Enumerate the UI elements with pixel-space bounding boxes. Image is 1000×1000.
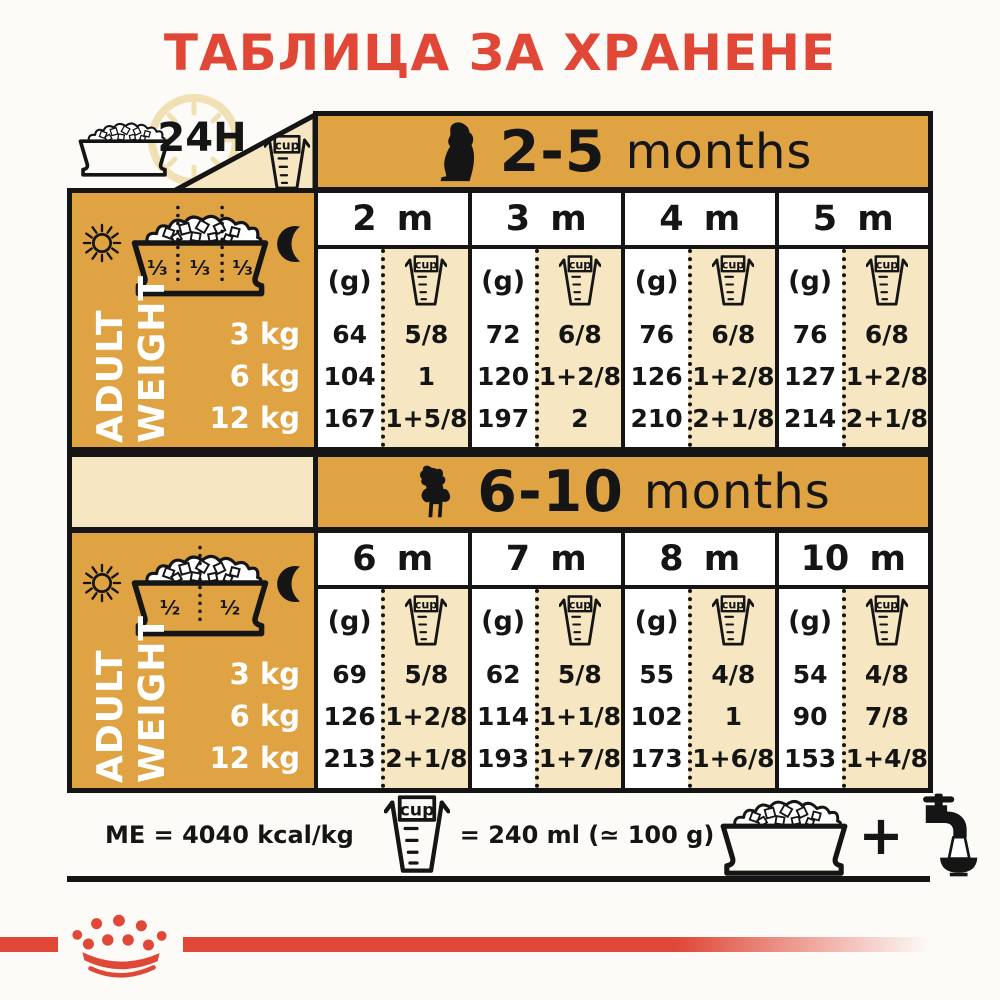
grams-value: 64 bbox=[318, 313, 381, 355]
weight-label: 12 kg bbox=[210, 397, 301, 439]
month-column-7m: 7 m (g) 62 114 193 5/8 1+1/8 1+7/8 bbox=[468, 533, 622, 788]
grams-value: 127 bbox=[779, 355, 842, 397]
cups-value: 6/8 bbox=[846, 313, 928, 355]
cups-value: 2+1/8 bbox=[385, 737, 467, 779]
measuring-cup-icon bbox=[405, 594, 447, 648]
cups-subcolumn: 4/8 1 1+6/8 bbox=[688, 589, 774, 788]
measuring-cup-icon bbox=[559, 594, 601, 648]
cup-equivalence: = 240 ml (≃ 100 g) bbox=[460, 821, 715, 849]
cups-value: 6/8 bbox=[692, 313, 774, 355]
weight-label: 6 kg bbox=[210, 695, 301, 737]
spacer-block bbox=[67, 452, 313, 532]
cups-value: 5/8 bbox=[539, 653, 621, 695]
grams-value: 62 bbox=[472, 653, 535, 695]
grams-value: 210 bbox=[625, 397, 688, 439]
red-accent-bar-right bbox=[183, 937, 930, 952]
month-header: 4 m bbox=[625, 193, 775, 249]
grams-value: 120 bbox=[472, 355, 535, 397]
table1-left-panel: ⅓ ⅓ ⅓ ADULT WEIGHT 3 kg 6 kg 12 kg bbox=[72, 193, 314, 447]
grams-value: 197 bbox=[472, 397, 535, 439]
water-tap-icon bbox=[908, 792, 988, 878]
cups-value: 4/8 bbox=[692, 653, 774, 695]
grams-value: 104 bbox=[318, 355, 381, 397]
measuring-cup-icon bbox=[405, 254, 447, 308]
month-header: 10 m bbox=[779, 533, 929, 589]
cups-subcolumn: 6/8 1+2/8 2+1/8 bbox=[688, 249, 774, 447]
grams-value: 76 bbox=[625, 313, 688, 355]
cups-value: 2+1/8 bbox=[846, 397, 928, 439]
grams-subcolumn: (g) 54 90 153 bbox=[779, 589, 842, 788]
weight-label: 3 kg bbox=[210, 313, 301, 355]
sun-icon bbox=[80, 221, 124, 265]
cups-value: 1 bbox=[385, 355, 467, 397]
cups-subcolumn: 5/8 1 1+5/8 bbox=[381, 249, 467, 447]
cups-value: 5/8 bbox=[385, 313, 467, 355]
month-header: 6 m bbox=[318, 533, 468, 589]
divider-line bbox=[67, 876, 930, 882]
cups-value: 1+5/8 bbox=[385, 397, 467, 439]
weight-label: 12 kg bbox=[210, 737, 301, 779]
svg-text:½: ½ bbox=[220, 597, 240, 620]
grams-subcolumn: (g) 55 102 173 bbox=[625, 589, 688, 788]
grams-unit-label: (g) bbox=[472, 589, 535, 653]
cups-subcolumn: 5/8 1+2/8 2+1/8 bbox=[381, 589, 467, 788]
feeding-table-2-5-months: ⅓ ⅓ ⅓ ADULT WEIGHT 3 kg 6 kg 12 kg 2 m (… bbox=[67, 188, 933, 452]
cups-value: 1+6/8 bbox=[692, 737, 774, 779]
grams-value: 126 bbox=[625, 355, 688, 397]
page-title: ТАБЛИЦА ЗА ХРАНЕНЕ bbox=[0, 24, 1000, 82]
cups-value: 2 bbox=[539, 397, 621, 439]
grams-value: 153 bbox=[779, 737, 842, 779]
daily-ration-icons: ⅓ ⅓ ⅓ bbox=[72, 193, 314, 300]
cups-value: 4/8 bbox=[846, 653, 928, 695]
age-unit: months bbox=[626, 124, 813, 180]
cups-value: 5/8 bbox=[385, 653, 467, 695]
grams-subcolumn: (g) 72 120 197 bbox=[472, 249, 535, 447]
measuring-cup-icon bbox=[559, 254, 601, 308]
food-bowl-icon bbox=[714, 791, 854, 879]
poodle-silhouette-icon bbox=[415, 463, 457, 521]
month-header: 7 m bbox=[472, 533, 622, 589]
grams-unit-label: (g) bbox=[625, 589, 688, 653]
month-column-6m: 6 m (g) 69 126 213 5/8 1+2/8 2+1/8 bbox=[314, 533, 468, 788]
table2-left-panel: ½ ½ ADULT WEIGHT 3 kg 6 kg 12 kg bbox=[72, 533, 314, 788]
measuring-cup-icon bbox=[866, 254, 908, 308]
month-column-4m: 4 m (g) 76 126 210 6/8 1+2/8 2+1/8 bbox=[621, 193, 775, 447]
grams-value: 69 bbox=[318, 653, 381, 695]
grams-value: 102 bbox=[625, 695, 688, 737]
weight-rows: 3 kg 6 kg 12 kg bbox=[210, 313, 301, 439]
grams-unit-label: (g) bbox=[318, 589, 381, 653]
grams-subcolumn: (g) 69 126 213 bbox=[318, 589, 381, 788]
grams-value: 55 bbox=[625, 653, 688, 695]
puppy-silhouette-icon bbox=[434, 121, 480, 183]
grams-unit-label: (g) bbox=[625, 249, 688, 313]
svg-text:⅓: ⅓ bbox=[190, 257, 210, 280]
grams-value: 213 bbox=[318, 737, 381, 779]
weight-label: 3 kg bbox=[210, 653, 301, 695]
grams-unit-label: (g) bbox=[318, 249, 381, 313]
grams-value: 76 bbox=[779, 313, 842, 355]
grams-subcolumn: (g) 76 126 210 bbox=[625, 249, 688, 447]
grams-value: 126 bbox=[318, 695, 381, 737]
cups-value: 1+7/8 bbox=[539, 737, 621, 779]
cups-value: 1+2/8 bbox=[385, 695, 467, 737]
cups-subcolumn: 6/8 1+2/8 2+1/8 bbox=[842, 249, 928, 447]
red-accent-bar-left bbox=[0, 937, 58, 952]
cups-value: 6/8 bbox=[539, 313, 621, 355]
daily-ration-icons: ½ ½ bbox=[72, 533, 314, 640]
adult-weight-label: ADULT WEIGHT bbox=[90, 633, 190, 783]
measuring-cup-icon bbox=[264, 134, 310, 192]
month-header: 3 m bbox=[472, 193, 622, 249]
grams-value: 72 bbox=[472, 313, 535, 355]
sun-icon bbox=[80, 561, 124, 605]
measuring-cup-icon bbox=[712, 594, 754, 648]
feeding-table-6-10-months: ½ ½ ADULT WEIGHT 3 kg 6 kg 12 kg 6 m (g)… bbox=[67, 528, 933, 793]
royal-canin-crown-logo bbox=[62, 906, 180, 980]
month-column-2m: 2 m (g) 64 104 167 5/8 1 1+5/8 bbox=[314, 193, 468, 447]
age-band-2-5-months: 2-5 months bbox=[313, 111, 933, 192]
plus-sign: + bbox=[858, 804, 903, 867]
month-column-3m: 3 m (g) 72 120 197 6/8 1+2/8 2 bbox=[468, 193, 622, 447]
grams-unit-label: (g) bbox=[779, 589, 842, 653]
cups-value: 7/8 bbox=[846, 695, 928, 737]
grams-unit-label: (g) bbox=[779, 249, 842, 313]
cups-subcolumn: 6/8 1+2/8 2 bbox=[535, 249, 621, 447]
month-column-5m: 5 m (g) 76 127 214 6/8 1+2/8 2+1/8 bbox=[775, 193, 929, 447]
cups-value: 1+2/8 bbox=[846, 355, 928, 397]
age-unit: months bbox=[644, 464, 831, 520]
month-column-8m: 8 m (g) 55 102 173 4/8 1 1+6/8 bbox=[621, 533, 775, 788]
grams-value: 167 bbox=[318, 397, 381, 439]
metabolizable-energy: ME = 4040 kcal/kg bbox=[105, 821, 354, 849]
grams-value: 54 bbox=[779, 653, 842, 695]
cups-value: 1+4/8 bbox=[846, 737, 928, 779]
cups-value: 2+1/8 bbox=[692, 397, 774, 439]
moon-icon bbox=[276, 223, 308, 265]
cups-value: 1+2/8 bbox=[539, 355, 621, 397]
grams-value: 114 bbox=[472, 695, 535, 737]
grams-value: 214 bbox=[779, 397, 842, 439]
month-column-10m: 10 m (g) 54 90 153 4/8 7/8 1+4/8 bbox=[775, 533, 929, 788]
month-header: 2 m bbox=[318, 193, 468, 249]
month-header: 8 m bbox=[625, 533, 775, 589]
grams-value: 90 bbox=[779, 695, 842, 737]
cups-value: 1 bbox=[692, 695, 774, 737]
cups-value: 1+1/8 bbox=[539, 695, 621, 737]
month-header: 5 m bbox=[779, 193, 929, 249]
adult-weight-label: ADULT WEIGHT bbox=[90, 293, 190, 443]
weight-label: 6 kg bbox=[210, 355, 301, 397]
age-range: 2-5 bbox=[500, 119, 606, 185]
moon-icon bbox=[276, 563, 308, 605]
grams-value: 173 bbox=[625, 737, 688, 779]
weight-rows: 3 kg 6 kg 12 kg bbox=[210, 653, 301, 779]
cups-subcolumn: 4/8 7/8 1+4/8 bbox=[842, 589, 928, 788]
age-range: 6-10 bbox=[477, 459, 624, 525]
svg-text:⅓: ⅓ bbox=[232, 257, 252, 280]
cups-subcolumn: 5/8 1+1/8 1+7/8 bbox=[535, 589, 621, 788]
age-band-6-10-months: 6-10 months bbox=[313, 452, 933, 532]
grams-subcolumn: (g) 64 104 167 bbox=[318, 249, 381, 447]
cups-value: 1+2/8 bbox=[692, 355, 774, 397]
measuring-cup-icon bbox=[866, 594, 908, 648]
measuring-cup-icon bbox=[384, 794, 450, 876]
grams-subcolumn: (g) 76 127 214 bbox=[779, 249, 842, 447]
grams-value: 193 bbox=[472, 737, 535, 779]
footer-legend: ME = 4040 kcal/kg = 240 ml (≃ 100 g) + bbox=[67, 793, 933, 877]
grams-subcolumn: (g) 62 114 193 bbox=[472, 589, 535, 788]
measuring-cup-icon bbox=[712, 254, 754, 308]
grams-unit-label: (g) bbox=[472, 249, 535, 313]
